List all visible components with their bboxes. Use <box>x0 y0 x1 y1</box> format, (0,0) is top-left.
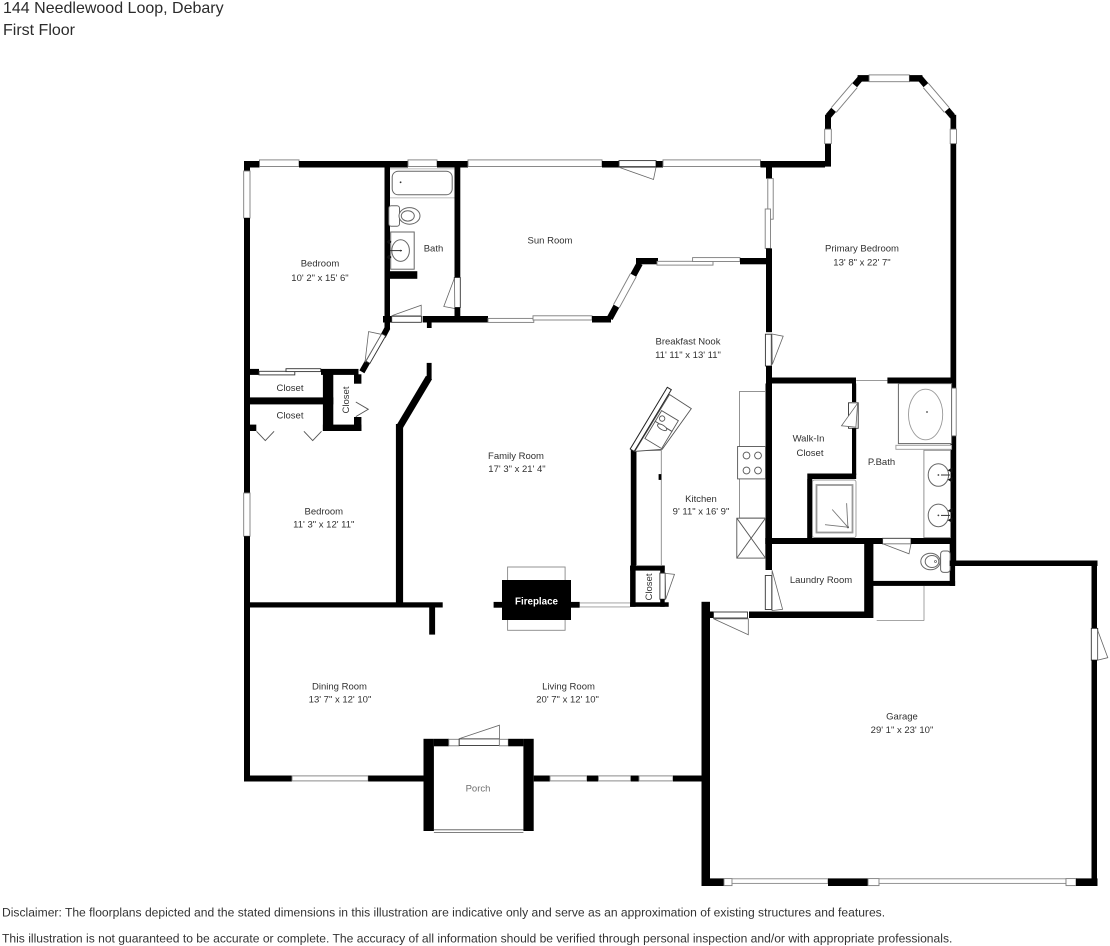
svg-text:Closet: Closet <box>644 573 655 600</box>
svg-text:20' 7" x 12' 10": 20' 7" x 12' 10" <box>536 695 599 706</box>
svg-text:First Floor: First Floor <box>3 22 76 39</box>
svg-text:Porch: Porch <box>466 783 491 794</box>
svg-text:Primary Bedroom: Primary Bedroom <box>825 243 899 254</box>
svg-text:Laundry Room: Laundry Room <box>790 575 852 586</box>
svg-text:Dining Room: Dining Room <box>312 681 367 692</box>
svg-text:Garage: Garage <box>886 711 918 722</box>
svg-text:Fireplace: Fireplace <box>515 596 559 607</box>
svg-text:This illustration is not guara: This illustration is not guaranteed to b… <box>2 932 952 946</box>
svg-text:Closet: Closet <box>277 383 304 394</box>
svg-text:11' 3" x 12' 11": 11' 3" x 12' 11" <box>293 519 354 530</box>
svg-text:Bath: Bath <box>424 243 444 254</box>
svg-text:11' 11" x 13' 11": 11' 11" x 13' 11" <box>655 350 721 361</box>
svg-text:Closet: Closet <box>277 410 304 421</box>
svg-text:Closet: Closet <box>797 448 824 459</box>
svg-text:29' 1" x 23' 10": 29' 1" x 23' 10" <box>871 725 934 736</box>
svg-text:17' 3" x 21' 4": 17' 3" x 21' 4" <box>488 464 545 475</box>
svg-text:Bedroom: Bedroom <box>305 506 344 517</box>
svg-text:13' 7" x 12' 10": 13' 7" x 12' 10" <box>309 695 372 706</box>
svg-text:Family Room: Family Room <box>488 451 544 462</box>
svg-text:Sun Room: Sun Room <box>528 235 573 246</box>
svg-text:144 Needlewood Loop, Debary: 144 Needlewood Loop, Debary <box>3 0 224 17</box>
svg-text:Breakfast Nook: Breakfast Nook <box>656 336 721 347</box>
svg-text:Walk-In: Walk-In <box>793 433 825 444</box>
svg-text:13' 8" x 22' 7": 13' 8" x 22' 7" <box>833 257 890 268</box>
svg-text:P.Bath: P.Bath <box>868 457 895 468</box>
svg-text:10' 2" x 15' 6": 10' 2" x 15' 6" <box>291 273 348 284</box>
svg-text:Kitchen: Kitchen <box>685 494 717 505</box>
svg-text:Closet: Closet <box>341 386 352 413</box>
svg-text:Disclaimer: The floorplans dep: Disclaimer: The floorplans depicted and … <box>2 906 885 920</box>
svg-text:Bedroom: Bedroom <box>301 258 340 269</box>
svg-text:9' 11" x 16' 9": 9' 11" x 16' 9" <box>673 506 730 517</box>
svg-text:Living Room: Living Room <box>542 681 595 692</box>
